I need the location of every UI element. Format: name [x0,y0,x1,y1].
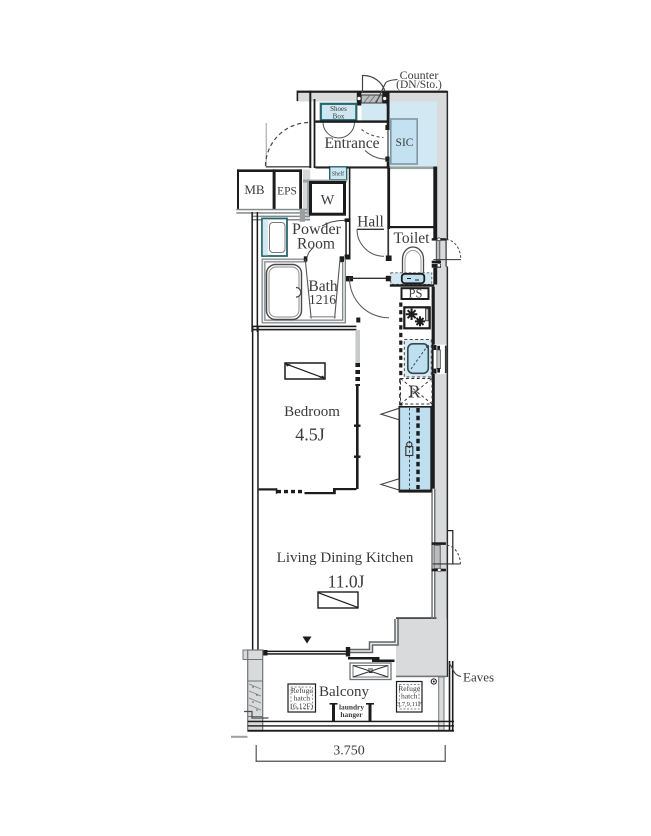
svg-text:4.5J: 4.5J [295,425,325,445]
svg-text:Entrance: Entrance [324,135,379,152]
svg-text:Eaves: Eaves [463,670,494,685]
svg-text:Toilet: Toilet [394,230,431,247]
svg-text:Living Dining Kitchen: Living Dining Kitchen [277,550,414,566]
svg-text:hatch: hatch [401,692,418,701]
svg-text:Balcony: Balcony [319,684,369,700]
svg-text:Bedroom: Bedroom [284,404,340,420]
svg-text:W: W [321,193,335,209]
svg-text:hanger: hanger [340,710,363,719]
svg-text:Room: Room [297,236,335,253]
svg-text:(6,12F): (6,12F) [291,702,314,711]
svg-text:Shelf: Shelf [332,171,344,178]
svg-text:Hall: Hall [357,214,384,231]
svg-text:3.750: 3.750 [333,744,365,759]
svg-text:11.0J: 11.0J [328,572,365,592]
svg-text:R: R [408,382,420,402]
svg-text:1216: 1216 [309,292,336,307]
svg-text:MB: MB [244,182,265,197]
svg-text:EPS: EPS [277,186,297,198]
svg-text:PS: PS [409,287,423,301]
svg-text:(DN/Sto.): (DN/Sto.) [396,79,442,91]
svg-text:Box: Box [333,113,345,121]
svg-text:3,7,9,11F: 3,7,9,11F [397,701,422,708]
svg-text:SIC: SIC [396,137,414,149]
